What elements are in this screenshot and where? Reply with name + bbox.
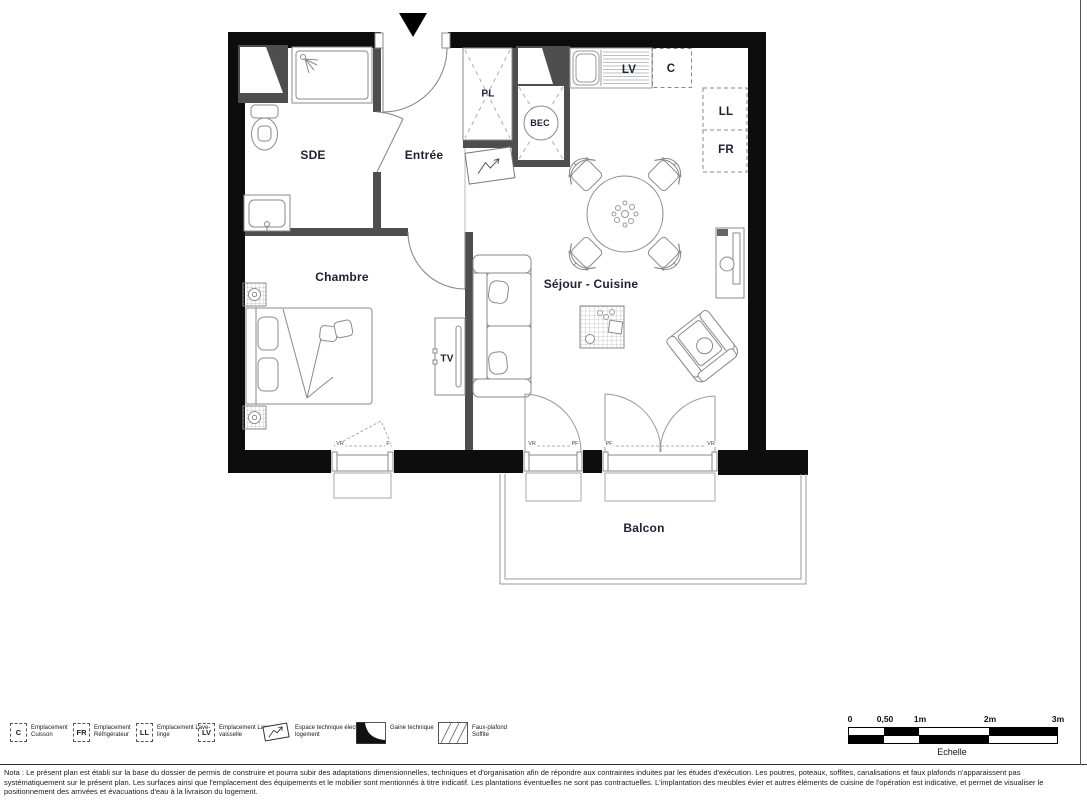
label-lave-vaisselle: LV (622, 64, 636, 76)
label-tv: TV (440, 354, 453, 365)
scale-label: Echelle (937, 747, 967, 757)
sheet-frame-right (1080, 0, 1081, 765)
windows (332, 452, 717, 501)
window-sill (334, 473, 391, 498)
label-refrigerateur: FR (718, 144, 734, 156)
armchair (665, 309, 740, 385)
sideboard (716, 228, 744, 298)
rug (580, 306, 624, 348)
window-opening-marks (334, 394, 715, 452)
lave-linge-code-box: LL (136, 723, 153, 742)
scale-tick: 3m (1052, 714, 1064, 724)
kitchen-counter (570, 48, 652, 88)
toilet (251, 105, 278, 150)
room-label-entree: Entrée (405, 148, 444, 162)
nota-text: Nota : Le présent plan est établi sur la… (4, 768, 1064, 797)
pillow (258, 358, 278, 391)
electric-space-icon (261, 722, 291, 742)
faux-plafond-icon (438, 722, 468, 744)
label-lave-linge: LL (719, 106, 733, 118)
window-tag: VR (527, 441, 537, 447)
window-tag: VR (706, 441, 716, 447)
room-label-sejour-cuisine: Séjour - Cuisine (544, 277, 639, 291)
window-tag: F (385, 441, 390, 447)
label-cuisson: C (667, 63, 676, 75)
floor-plan-sheet: SDE Entrée Chambre Séjour - Cuisine Balc… (0, 0, 1087, 800)
sofa-pillow (488, 280, 510, 304)
lave-vaisselle-code-box: LV (198, 723, 215, 742)
gaine-technique-shafts (238, 45, 570, 103)
sheet-frame-bottom (0, 764, 1087, 765)
label-bec: BEC (530, 118, 550, 128)
sofa-pillow (488, 351, 508, 375)
electric-space-symbol (465, 147, 515, 184)
window-tag: PF (570, 441, 579, 447)
window-sill (605, 473, 715, 501)
dining-table (587, 176, 663, 252)
gaine-technique-icon (356, 722, 386, 744)
pillow (258, 317, 278, 350)
sofa (473, 255, 531, 397)
room-label-sde: SDE (300, 148, 325, 162)
washbasin (244, 195, 290, 231)
nightstand (243, 283, 266, 306)
room-label-balcon: Balcon (623, 521, 664, 535)
legend-item-faux-plafond: Faux-plafond Soffite (438, 722, 524, 744)
shower (292, 47, 372, 103)
window-sill (526, 473, 581, 501)
scale-bar-row (848, 735, 1058, 744)
refrigerateur-code-box: FR (73, 723, 90, 742)
label-placard: PL (481, 89, 494, 100)
scale-tick: 0,50 (877, 714, 894, 724)
scale-tick: 0 (848, 714, 853, 724)
scale-bar: 0 0,50 1m 2m 3m Echelle (846, 714, 1062, 762)
cuisson-code-box: C (10, 723, 27, 742)
dining-set (562, 151, 689, 278)
scale-tick: 1m (914, 714, 926, 724)
room-label-chambre: Chambre (315, 270, 368, 284)
nightstand (243, 406, 266, 429)
window-tag: PF (604, 441, 613, 447)
tv-screen (456, 326, 461, 387)
cushion (334, 319, 354, 338)
doors (377, 48, 465, 289)
shower-head-icon (301, 55, 306, 60)
bed (246, 308, 372, 404)
window-tag: VR (335, 441, 345, 447)
entrance-arrow-icon (399, 13, 427, 37)
scale-tick: 2m (984, 714, 996, 724)
